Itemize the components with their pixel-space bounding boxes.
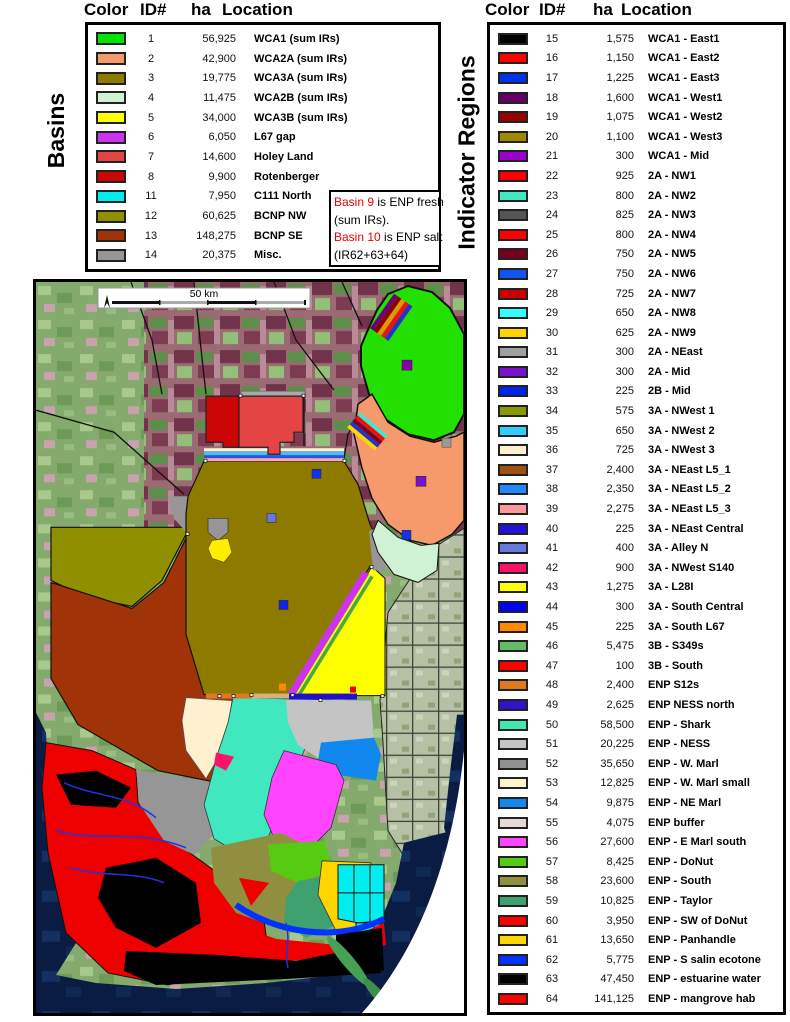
- cell-id: 8: [126, 171, 176, 183]
- ir-header-id: ID#: [539, 0, 565, 20]
- cell-id: 22: [528, 170, 576, 182]
- color-swatch: [498, 150, 528, 162]
- blue-boundary-band: [289, 694, 357, 700]
- indicator_regions-row-29: 296502A - NW8: [490, 303, 783, 323]
- cell-id: 11: [126, 190, 176, 202]
- cell-location: 2A - NW8: [648, 307, 696, 319]
- note-text: (sum IRs).: [334, 213, 389, 227]
- cell-id: 53: [528, 777, 576, 789]
- cell-ha: 1,275: [576, 581, 634, 593]
- indicator_regions-row-15: 151,575WCA1 - East1: [490, 29, 783, 49]
- cell-location: WCA1 - West2: [648, 111, 722, 123]
- color-swatch: [498, 405, 528, 417]
- cell-id: 29: [528, 307, 576, 319]
- cell-ha: 60,625: [176, 210, 236, 222]
- indicator_regions-row-31: 313002A - NEast: [490, 343, 783, 363]
- indicator_regions-row-50: 5058,500ENP - Shark: [490, 715, 783, 735]
- cell-ha: 20,225: [576, 738, 634, 750]
- cell-id: 31: [528, 346, 576, 358]
- cell-id: 54: [528, 797, 576, 809]
- indicator_regions-row-20: 201,100WCA1 - West3: [490, 127, 783, 147]
- cell-location: 2A - NW5: [648, 248, 696, 260]
- cell-ha: 2,400: [576, 679, 634, 691]
- color-swatch: [498, 366, 528, 378]
- cell-location: ENP NESS north: [648, 699, 735, 711]
- cell-location: 3B - S349s: [648, 640, 704, 652]
- cell-id: 1: [126, 33, 176, 45]
- cell-id: 33: [528, 385, 576, 397]
- cell-id: 25: [528, 229, 576, 241]
- cell-id: 41: [528, 542, 576, 554]
- basin-note-box: Basin 9 is ENP fresh(sum IRs).Basin 10 i…: [329, 190, 441, 267]
- color-swatch: [498, 660, 528, 672]
- cell-ha: 2,350: [576, 483, 634, 495]
- cell-id: 32: [528, 366, 576, 378]
- indicator_regions-row-54: 549,875ENP - NE Marl: [490, 793, 783, 813]
- cell-id: 63: [528, 973, 576, 985]
- cell-id: 45: [528, 621, 576, 633]
- color-swatch: [498, 288, 528, 300]
- indicator_regions-row-34: 345753A - NWest 1: [490, 401, 783, 421]
- cell-ha: 10,825: [576, 895, 634, 907]
- cell-ha: 148,275: [176, 230, 236, 242]
- cell-ha: 800: [576, 229, 634, 241]
- cell-ha: 1,150: [576, 52, 634, 64]
- cell-location: WCA1 - West1: [648, 92, 722, 104]
- cell-location: 3A - NWest 1: [648, 405, 715, 417]
- indicator_regions-row-60: 603,950ENP - SW of DoNut: [490, 911, 783, 931]
- color-swatch: [96, 249, 126, 262]
- indicator_regions-row-46: 465,4753B - S349s: [490, 636, 783, 656]
- cell-id: 62: [528, 954, 576, 966]
- cell-id: 51: [528, 738, 576, 750]
- cell-ha: 1,600: [576, 92, 634, 104]
- cell-id: 12: [126, 210, 176, 222]
- cell-ha: 300: [576, 150, 634, 162]
- cell-location: ENP S12s: [648, 679, 699, 691]
- cell-location: 3A - South Central: [648, 601, 744, 613]
- basins-row-2: 242,900WCA2A (sum IRs): [88, 49, 438, 69]
- note-line: (IR62+63+64): [334, 247, 436, 265]
- cell-ha: 650: [576, 307, 634, 319]
- cell-id: 43: [528, 581, 576, 593]
- color-swatch: [498, 209, 528, 221]
- indicator_regions-row-24: 248252A - NW3: [490, 205, 783, 225]
- cell-ha: 8,425: [576, 856, 634, 868]
- color-swatch: [498, 385, 528, 397]
- cell-location: WCA3A (sum IRs): [254, 72, 347, 84]
- color-swatch: [498, 777, 528, 789]
- marker-wca3a-2: [279, 600, 288, 609]
- indicator_regions-row-33: 332252B - Mid: [490, 382, 783, 402]
- cell-id: 18: [528, 92, 576, 104]
- cell-ha: 2,275: [576, 503, 634, 515]
- cell-ha: 9,875: [576, 797, 634, 809]
- cell-ha: 20,375: [176, 249, 236, 261]
- cell-location: WCA1 - Mid: [648, 150, 709, 162]
- color-swatch: [96, 150, 126, 163]
- indicator_regions-row-55: 554,075ENP buffer: [490, 813, 783, 833]
- indicator_regions-row-39: 392,2753A - NEast L5_3: [490, 499, 783, 519]
- color-swatch: [96, 32, 126, 45]
- cell-ha: 400: [576, 542, 634, 554]
- cell-ha: 100: [576, 660, 634, 672]
- color-swatch: [498, 229, 528, 241]
- color-swatch: [498, 758, 528, 770]
- cell-ha: 925: [576, 170, 634, 182]
- cell-id: 34: [528, 405, 576, 417]
- indicator_regions-row-48: 482,400ENP S12s: [490, 676, 783, 696]
- cell-location: ENP - E Marl south: [648, 836, 746, 848]
- color-swatch: [498, 581, 528, 593]
- cell-location: Holey Land: [254, 151, 313, 163]
- cell-ha: 575: [576, 405, 634, 417]
- color-swatch: [96, 190, 126, 203]
- cell-location: 3A - L28I: [648, 581, 693, 593]
- cell-location: 2A - NEast: [648, 346, 703, 358]
- cell-id: 24: [528, 209, 576, 221]
- indicator_regions-row-36: 367253A - NWest 3: [490, 440, 783, 460]
- cell-location: 2B - Mid: [648, 385, 691, 397]
- cell-location: WCA1 - West3: [648, 131, 722, 143]
- cell-location: 3A - NWest S140: [648, 562, 734, 574]
- cell-id: 64: [528, 993, 576, 1005]
- basins-header-ha: ha: [191, 0, 211, 20]
- cell-location: ENP - NE Marl: [648, 797, 721, 809]
- cell-location: ENP - Taylor: [648, 895, 712, 907]
- cell-id: 35: [528, 425, 576, 437]
- marker-wca3a-1: [312, 469, 321, 478]
- cell-location: ENP - Shark: [648, 719, 711, 731]
- cell-location: ENP - S salin ecotone: [648, 954, 761, 966]
- color-swatch: [498, 601, 528, 613]
- indicator_regions-row-52: 5235,650ENP - W. Marl: [490, 754, 783, 774]
- basins-section-label: Basins: [43, 93, 70, 168]
- cell-location: 3A - NEast Central: [648, 523, 744, 535]
- color-swatch: [498, 562, 528, 574]
- color-swatch: [498, 719, 528, 731]
- cell-ha: 7,950: [176, 190, 236, 202]
- cell-id: 15: [528, 33, 576, 45]
- gray-border-strip: [241, 391, 305, 396]
- indicator_regions-row-47: 471003B - South: [490, 656, 783, 676]
- tan-boundary-band: [252, 694, 289, 699]
- indicator_regions-row-23: 238002A - NW2: [490, 186, 783, 206]
- indicator_regions-row-40: 402253A - NEast Central: [490, 519, 783, 539]
- cell-location: WCA1 - East2: [648, 52, 720, 64]
- cell-ha: 9,900: [176, 171, 236, 183]
- color-swatch: [96, 72, 126, 85]
- cell-id: 5: [126, 112, 176, 124]
- cell-ha: 141,125: [576, 993, 634, 1005]
- basins-header-row: Color ID# ha Location: [84, 0, 444, 20]
- color-swatch: [498, 248, 528, 260]
- indicator_regions-row-25: 258002A - NW4: [490, 225, 783, 245]
- color-swatch: [498, 346, 528, 358]
- marker-south-l67: [279, 684, 286, 691]
- cell-ha: 12,825: [576, 777, 634, 789]
- basins-row-1: 156,925WCA1 (sum IRs): [88, 29, 438, 49]
- cell-location: 2A - NW2: [648, 190, 696, 202]
- color-swatch: [96, 111, 126, 124]
- marker-wca1-mid: [402, 360, 412, 370]
- cell-ha: 13,650: [576, 934, 634, 946]
- cell-location: ENP - SW of DoNut: [648, 915, 747, 927]
- cell-location: C111 North: [254, 190, 311, 202]
- indicator_regions-row-59: 5910,825ENP - Taylor: [490, 891, 783, 911]
- indicator_regions-row-17: 171,225WCA1 - East3: [490, 68, 783, 88]
- cell-location: WCA1 - East3: [648, 72, 720, 84]
- color-swatch: [498, 52, 528, 64]
- note-line: Basin 10 is ENP salt: [334, 229, 436, 247]
- color-swatch: [96, 52, 126, 65]
- cell-ha: 2,400: [576, 464, 634, 476]
- cell-ha: 825: [576, 209, 634, 221]
- basins-row-8: 89,900Rotenberger: [88, 167, 438, 187]
- cell-id: 38: [528, 483, 576, 495]
- color-swatch: [498, 111, 528, 123]
- color-swatch: [498, 738, 528, 750]
- color-swatch: [96, 170, 126, 183]
- note-basin-ref: Basin 9: [334, 195, 374, 209]
- cell-ha: 5,775: [576, 954, 634, 966]
- color-swatch: [498, 327, 528, 339]
- color-swatch: [498, 464, 528, 476]
- cell-id: 56: [528, 836, 576, 848]
- basins-row-6: 66,050L67 gap: [88, 127, 438, 147]
- cell-ha: 750: [576, 248, 634, 260]
- color-swatch: [498, 33, 528, 45]
- cell-ha: 725: [576, 288, 634, 300]
- cell-location: WCA1 - East1: [648, 33, 720, 45]
- cell-ha: 47,450: [576, 973, 634, 985]
- indicator-regions-header-row: Color ID# ha Location: [485, 0, 785, 20]
- cell-id: 40: [528, 523, 576, 535]
- color-swatch: [498, 621, 528, 633]
- marker-alley-n: [267, 513, 276, 522]
- indicator_regions-row-45: 452253A - South L67: [490, 617, 783, 637]
- orange-boundary-band: [206, 694, 252, 699]
- scale-bar-label: 50 km: [190, 288, 219, 300]
- color-swatch: [498, 131, 528, 143]
- cell-ha: 42,900: [176, 53, 236, 65]
- cell-ha: 27,600: [576, 836, 634, 848]
- cell-id: 59: [528, 895, 576, 907]
- indicator_regions-row-27: 277502A - NW6: [490, 264, 783, 284]
- basins-header-location: Location: [222, 0, 293, 20]
- color-swatch: [96, 91, 126, 104]
- cell-ha: 1,225: [576, 72, 634, 84]
- cell-ha: 14,600: [176, 151, 236, 163]
- cell-id: 23: [528, 190, 576, 202]
- cell-location: BCNP SE: [254, 230, 303, 242]
- cell-location: 3B - South: [648, 660, 703, 672]
- color-swatch: [498, 523, 528, 535]
- indicator_regions-row-49: 492,625ENP NESS north: [490, 695, 783, 715]
- cell-ha: 58,500: [576, 719, 634, 731]
- color-swatch: [498, 72, 528, 84]
- color-swatch: [96, 210, 126, 223]
- cell-location: 2A - NW4: [648, 229, 696, 241]
- indicator_regions-row-21: 21300WCA1 - Mid: [490, 147, 783, 167]
- indicator-regions-section-label: Indicator Regions: [454, 55, 481, 249]
- cell-id: 47: [528, 660, 576, 672]
- note-text: (IR62+63+64): [334, 248, 408, 262]
- cell-id: 16: [528, 52, 576, 64]
- basins-row-7: 714,600Holey Land: [88, 147, 438, 167]
- color-swatch: [96, 229, 126, 242]
- cell-id: 21: [528, 150, 576, 162]
- color-swatch: [498, 640, 528, 652]
- basins-row-4: 411,475WCA2B (sum IRs): [88, 88, 438, 108]
- color-swatch: [498, 954, 528, 966]
- ir-header-ha: ha: [593, 0, 613, 20]
- cell-ha: 5,475: [576, 640, 634, 652]
- cell-location: 3A - NEast L5_3: [648, 503, 731, 515]
- cell-location: ENP - DoNut: [648, 856, 713, 868]
- cell-location: WCA1 (sum IRs): [254, 33, 340, 45]
- color-swatch: [498, 856, 528, 868]
- color-swatch: [498, 875, 528, 887]
- figure: Basins Color ID# ha Location 156,925WCA1…: [0, 0, 790, 1022]
- cell-location: 2A - Mid: [648, 366, 690, 378]
- indicator_regions-row-35: 356503A - NWest 2: [490, 421, 783, 441]
- cell-id: 37: [528, 464, 576, 476]
- indicator-regions-legend-box: 151,575WCA1 - East1161,150WCA1 - East217…: [487, 22, 786, 1015]
- note-line: (sum IRs).: [334, 212, 436, 230]
- cell-location: ENP - W. Marl small: [648, 777, 750, 789]
- color-swatch: [498, 699, 528, 711]
- color-swatch: [96, 131, 126, 144]
- marker-wca2a-neast: [442, 438, 451, 447]
- cell-location: 3A - Alley N: [648, 542, 708, 554]
- basins-row-3: 319,775WCA3A (sum IRs): [88, 68, 438, 88]
- map: 50 km: [33, 279, 467, 1016]
- cell-id: 61: [528, 934, 576, 946]
- map-canvas: 50 km: [36, 282, 464, 1013]
- cell-id: 30: [528, 327, 576, 339]
- cell-id: 13: [126, 230, 176, 242]
- ir-header-color: Color: [485, 0, 529, 20]
- cell-ha: 625: [576, 327, 634, 339]
- note-basin-ref: Basin 10: [334, 230, 381, 244]
- cell-id: 6: [126, 131, 176, 143]
- color-swatch: [498, 797, 528, 809]
- indicator_regions-row-51: 5120,225ENP - NESS: [490, 734, 783, 754]
- cell-ha: 300: [576, 346, 634, 358]
- cell-ha: 34,000: [176, 112, 236, 124]
- cell-location: WCA2A (sum IRs): [254, 53, 347, 65]
- cell-id: 42: [528, 562, 576, 574]
- cell-id: 27: [528, 268, 576, 280]
- cell-ha: 4,075: [576, 817, 634, 829]
- cell-id: 39: [528, 503, 576, 515]
- cell-ha: 300: [576, 601, 634, 613]
- indicator_regions-row-22: 229252A - NW1: [490, 166, 783, 186]
- cell-location: ENP - W. Marl: [648, 758, 719, 770]
- cell-id: 44: [528, 601, 576, 613]
- cell-ha: 900: [576, 562, 634, 574]
- cell-location: WCA3B (sum IRs): [254, 112, 348, 124]
- cell-ha: 225: [576, 523, 634, 535]
- cell-location: 2A - NW3: [648, 209, 696, 221]
- color-swatch: [498, 92, 528, 104]
- indicator_regions-row-58: 5823,600ENP - South: [490, 872, 783, 892]
- cell-ha: 225: [576, 621, 634, 633]
- indicator_regions-row-32: 323002A - Mid: [490, 362, 783, 382]
- note-text: is ENP fresh: [374, 195, 444, 209]
- cell-location: 3A - NWest 2: [648, 425, 715, 437]
- cell-id: 4: [126, 92, 176, 104]
- indicator_regions-row-62: 625,775ENP - S salin ecotone: [490, 950, 783, 970]
- ir-header-location: Location: [621, 0, 692, 20]
- cell-id: 7: [126, 151, 176, 163]
- color-swatch: [498, 170, 528, 182]
- color-swatch: [498, 934, 528, 946]
- cell-ha: 35,650: [576, 758, 634, 770]
- indicator_regions-row-43: 431,2753A - L28I: [490, 578, 783, 598]
- color-swatch: [498, 444, 528, 456]
- color-swatch: [498, 895, 528, 907]
- color-swatch: [498, 915, 528, 927]
- indicator_regions-row-18: 181,600WCA1 - West1: [490, 88, 783, 108]
- color-swatch: [498, 817, 528, 829]
- cell-ha: 11,475: [176, 92, 236, 104]
- cell-location: ENP - Panhandle: [648, 934, 736, 946]
- cell-id: 46: [528, 640, 576, 652]
- cell-id: 58: [528, 875, 576, 887]
- cell-id: 60: [528, 915, 576, 927]
- indicator_regions-row-42: 429003A - NWest S140: [490, 558, 783, 578]
- cell-ha: 6,050: [176, 131, 236, 143]
- indicator_regions-row-16: 161,150WCA1 - East2: [490, 49, 783, 69]
- cell-ha: 19,775: [176, 72, 236, 84]
- indicator_regions-row-19: 191,075WCA1 - West2: [490, 107, 783, 127]
- cell-id: 17: [528, 72, 576, 84]
- cell-id: 50: [528, 719, 576, 731]
- indicator_regions-row-64: 64141,125ENP - mangrove hab: [490, 989, 783, 1009]
- cell-ha: 3,950: [576, 915, 634, 927]
- cell-location: 3A - NWest 3: [648, 444, 715, 456]
- cell-id: 49: [528, 699, 576, 711]
- color-swatch: [498, 836, 528, 848]
- indicator_regions-row-41: 414003A - Alley N: [490, 538, 783, 558]
- cell-id: 36: [528, 444, 576, 456]
- color-swatch: [498, 973, 528, 985]
- cell-location: 2A - NW7: [648, 288, 696, 300]
- cell-ha: 750: [576, 268, 634, 280]
- color-swatch: [498, 425, 528, 437]
- color-swatch: [498, 307, 528, 319]
- color-swatch: [498, 483, 528, 495]
- cell-id: 20: [528, 131, 576, 143]
- indicator_regions-row-57: 578,425ENP - DoNut: [490, 852, 783, 872]
- color-swatch: [498, 993, 528, 1005]
- note-text: is ENP salt: [381, 230, 443, 244]
- cell-id: 3: [126, 72, 176, 84]
- color-swatch: [498, 542, 528, 554]
- cell-ha: 650: [576, 425, 634, 437]
- cell-location: ENP buffer: [648, 817, 705, 829]
- cell-id: 48: [528, 679, 576, 691]
- basins-header-id: ID#: [140, 0, 166, 20]
- marker-wca2b-mid: [402, 530, 411, 539]
- cell-location: ENP - mangrove hab: [648, 993, 755, 1005]
- cell-location: BCNP NW: [254, 210, 306, 222]
- marker-3b-south: [350, 687, 356, 693]
- color-swatch: [498, 190, 528, 202]
- cell-location: Rotenberger: [254, 171, 319, 183]
